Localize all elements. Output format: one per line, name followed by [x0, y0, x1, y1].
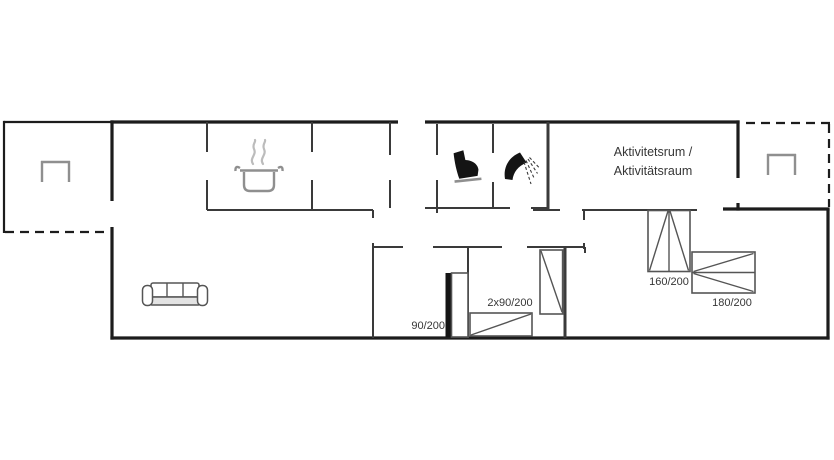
right-terrace	[746, 123, 830, 207]
garden-table-icon	[41, 161, 70, 182]
bed-90x200	[446, 273, 469, 337]
bed-size-label-90x200: 90/200	[406, 320, 445, 333]
activity-room-label: Aktivitetsrum / Aktivitätsraum	[578, 143, 728, 181]
bed-size-label-2x90x200: 2x90/200	[482, 297, 538, 310]
cooking-pot-icon	[235, 140, 282, 191]
bed-2x90x200-vertical	[540, 250, 563, 314]
bed-2x90x200-horizontal	[470, 313, 532, 336]
shower-icon	[505, 153, 539, 185]
toilet-icon	[451, 149, 481, 183]
bed-180x200	[692, 252, 755, 293]
bed-160x200	[648, 211, 690, 272]
activity-room-label-line1: Aktivitetsrum /	[578, 143, 728, 162]
bed-size-label-160x200: 160/200	[645, 276, 693, 289]
floor-plan-drawing	[0, 0, 834, 460]
floor-plan: Aktivitetsrum / Aktivitätsraum 90/200 2x…	[0, 0, 834, 460]
activity-room-label-line2: Aktivitätsraum	[578, 162, 728, 181]
bed-size-label-180x200: 180/200	[706, 297, 758, 310]
sofa-icon	[143, 283, 208, 306]
left-terrace	[4, 121, 112, 233]
garden-table-icon	[767, 154, 796, 175]
